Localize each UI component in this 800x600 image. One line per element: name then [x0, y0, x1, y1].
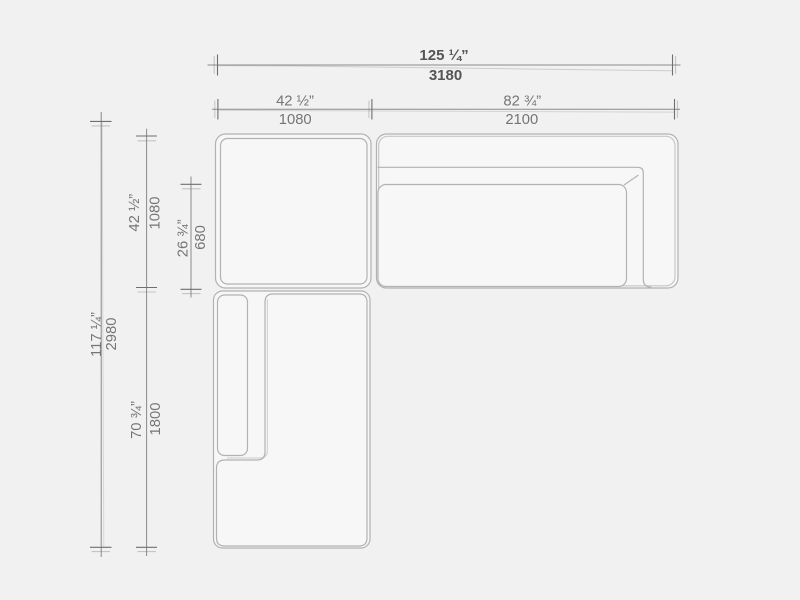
svg-text:125 ¼”: 125 ¼”	[419, 47, 468, 64]
svg-text:1080: 1080	[279, 112, 312, 128]
svg-text:680: 680	[193, 225, 209, 250]
svg-text:42 ½”: 42 ½”	[276, 94, 314, 110]
svg-text:2100: 2100	[505, 112, 538, 128]
svg-text:2980: 2980	[104, 318, 120, 351]
svg-text:3180: 3180	[429, 67, 462, 84]
svg-text:26 ¾”: 26 ¾”	[175, 219, 191, 257]
svg-text:117 ¼”: 117 ¼”	[89, 312, 105, 357]
svg-text:42 ½”: 42 ½”	[127, 194, 143, 232]
svg-text:1080: 1080	[147, 197, 163, 230]
svg-text:82 ¾”: 82 ¾”	[503, 94, 541, 110]
svg-text:1800: 1800	[148, 403, 164, 436]
svg-text:70 ¾”: 70 ¾”	[129, 401, 145, 439]
